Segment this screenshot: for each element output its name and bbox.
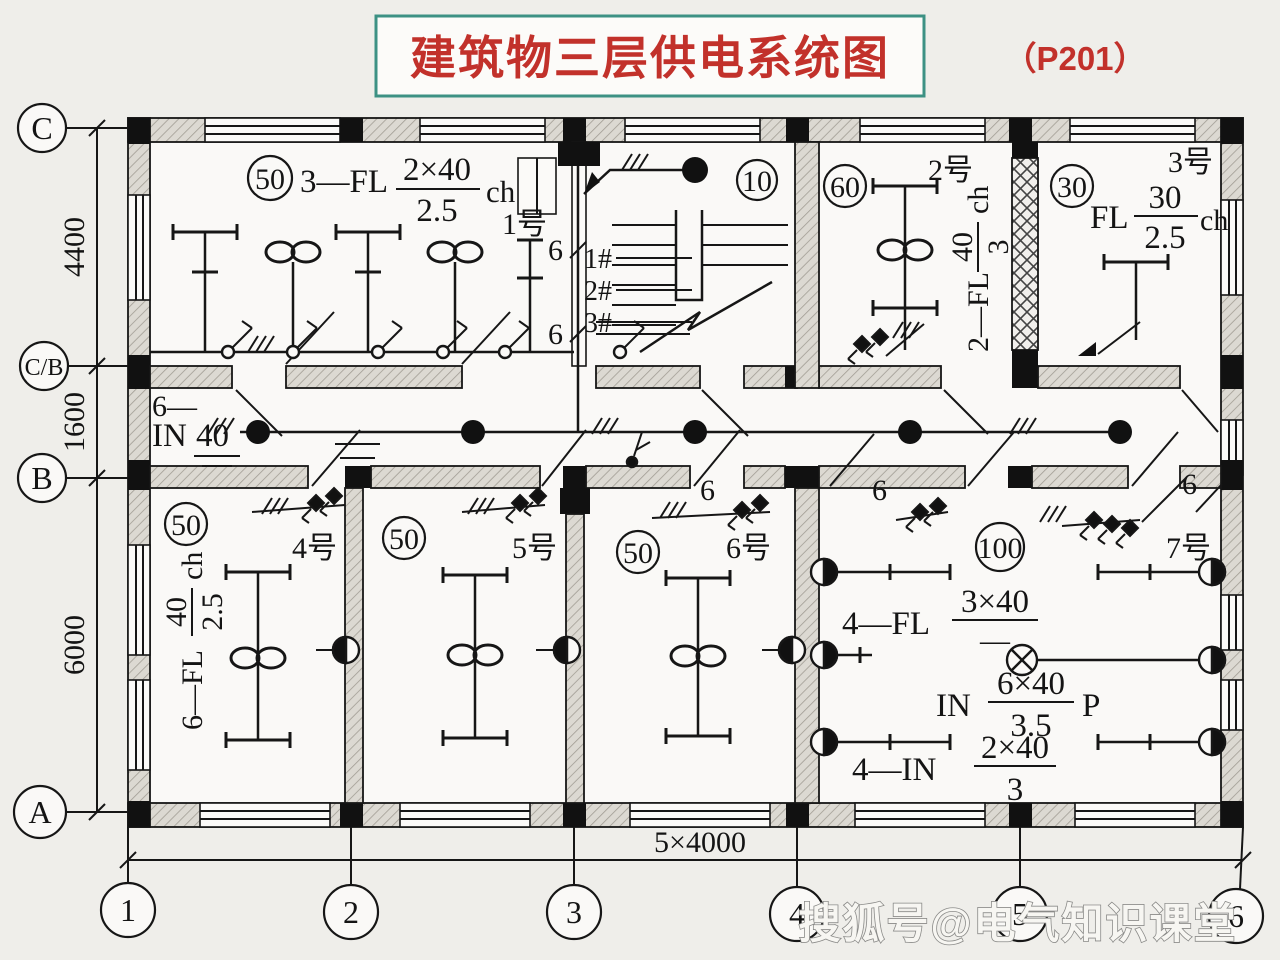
svg-text:4—FL: 4—FL	[842, 606, 930, 642]
room6-rating: 50	[623, 537, 653, 570]
wall-light-icon	[333, 637, 359, 663]
room1-number: 1号	[502, 208, 547, 241]
room1-rating: 50	[255, 163, 285, 196]
row-label-a: A	[28, 794, 51, 830]
room7-rating: 100	[978, 532, 1023, 565]
wall-light-icon	[779, 637, 805, 663]
wall-light-icon	[554, 637, 580, 663]
svg-text:IN: IN	[936, 688, 971, 724]
svg-text:40: 40	[160, 597, 193, 627]
room3-circuit-den: 2.5	[1144, 220, 1185, 256]
distribution-box	[558, 142, 600, 166]
wall-light-icon	[811, 559, 837, 585]
wire-count-label: 6	[548, 234, 563, 267]
floor-plan-canvas: 建筑物三层供电系统图 （P201） C C/B B A 4400 1600 60…	[0, 0, 1280, 960]
svg-text:2.5: 2.5	[196, 593, 229, 631]
stair-rating: 10	[742, 165, 772, 198]
corridor-circuit-name: IN	[152, 418, 187, 454]
svg-text:—: —	[979, 624, 1011, 657]
room5-number: 5号	[512, 532, 557, 565]
room1-circuit-prefix: 3—FL	[300, 164, 388, 200]
room3-number: 3号	[1168, 146, 1213, 179]
room1-circuit-den: 2.5	[416, 193, 457, 229]
watermark: 搜狐号@电气知识课堂	[799, 900, 1238, 947]
wall-light-icon	[811, 642, 837, 668]
ceiling-light-icon	[246, 420, 270, 444]
row-label-c: C	[31, 110, 52, 146]
page-title: 建筑物三层供电系统图	[410, 32, 890, 84]
page-ref: （P201）	[1003, 40, 1146, 77]
room4-number: 4号	[292, 532, 337, 565]
wall-light-icon	[1199, 559, 1225, 585]
room3-circuit-unit: ch	[1200, 204, 1228, 237]
dim-1600: 1600	[58, 392, 91, 452]
svg-text:P: P	[1082, 688, 1100, 724]
svg-text:ch: ch	[176, 552, 209, 580]
col-label-1: 1	[120, 892, 136, 928]
room7-number: 7号	[1166, 532, 1211, 565]
svg-text:40: 40	[946, 232, 979, 262]
ceiling-light-icon	[682, 157, 708, 183]
title-box: 建筑物三层供电系统图	[376, 16, 924, 96]
room4-rating: 50	[171, 509, 201, 542]
room1-circuit-num: 2×40	[403, 152, 471, 188]
wall-light-icon	[811, 729, 837, 755]
dim-bottom: 5×4000	[654, 826, 746, 859]
pull-switch-icon	[627, 457, 637, 467]
room6-number: 6号	[726, 532, 771, 565]
room1-circuit-unit: ch	[486, 174, 516, 209]
riser-3-label: 3#	[584, 308, 612, 339]
wire-count-label: 6	[872, 474, 887, 507]
room3-rating: 30	[1057, 171, 1087, 204]
ceiling-light-icon	[461, 420, 485, 444]
svg-text:2×40: 2×40	[981, 730, 1049, 766]
room2-number: 2号	[928, 154, 973, 187]
svg-text:6—FL: 6—FL	[176, 650, 209, 730]
room3-circuit-num: 30	[1149, 180, 1182, 216]
riser-1-label: 1#	[584, 244, 612, 275]
svg-text:4—IN: 4—IN	[852, 752, 936, 788]
svg-text:3×40: 3×40	[961, 584, 1029, 620]
row-label-b: B	[31, 460, 52, 496]
wall-light-icon	[1199, 729, 1225, 755]
dim-4400: 4400	[58, 217, 91, 277]
ceiling-light-icon	[1108, 420, 1132, 444]
dim-6000: 6000	[58, 615, 91, 675]
wire-count-label: 6	[548, 318, 563, 351]
room3-circuit-prefix: FL	[1090, 200, 1129, 236]
ceiling-light-icon	[898, 420, 922, 444]
svg-text:3: 3	[1007, 772, 1024, 808]
ceiling-light-icon	[683, 420, 707, 444]
col-label-3: 3	[566, 894, 582, 930]
wall-light-icon	[1199, 647, 1225, 673]
room2-rating: 60	[830, 171, 860, 204]
shaft-wall	[1012, 158, 1038, 350]
svg-text:ch: ch	[962, 186, 995, 214]
svg-text:6×40: 6×40	[997, 666, 1065, 702]
svg-text:3: 3	[982, 240, 1015, 255]
col-label-2: 2	[343, 894, 359, 930]
riser-2-label: 2#	[584, 276, 612, 307]
corridor-circuit-num: 40	[196, 418, 229, 454]
svg-text:2—FL: 2—FL	[962, 272, 995, 352]
room5-rating: 50	[389, 523, 419, 556]
wire-count-label: 6	[1182, 468, 1197, 501]
row-label-cb: C/B	[25, 355, 64, 381]
